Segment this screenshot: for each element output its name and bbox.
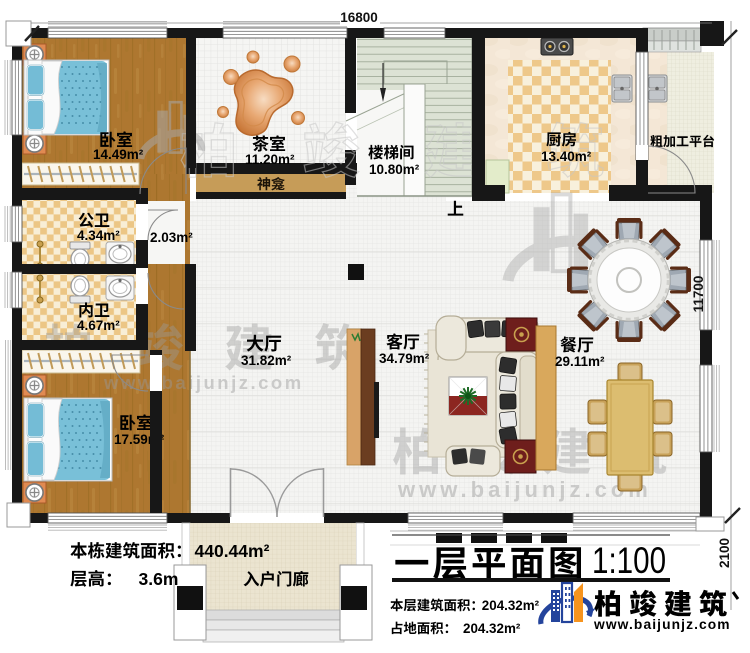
- svg-text:14.49m²: 14.49m²: [93, 147, 144, 162]
- svg-text:2100: 2100: [717, 538, 732, 568]
- svg-text:440.44m²: 440.44m²: [195, 541, 270, 561]
- svg-text:11700: 11700: [691, 276, 706, 313]
- svg-text:3.6m: 3.6m: [139, 569, 179, 589]
- svg-text:4.67m²: 4.67m²: [77, 318, 120, 333]
- svg-text:www.baijunjz.com: www.baijunjz.com: [397, 477, 652, 502]
- svg-text:204.32m²: 204.32m²: [482, 598, 540, 613]
- svg-text:34.79m²: 34.79m²: [379, 351, 430, 366]
- svg-text:31.82m²: 31.82m²: [241, 353, 292, 368]
- svg-text:www.baijunjz.com: www.baijunjz.com: [593, 617, 731, 632]
- svg-text:204.32m²: 204.32m²: [463, 621, 521, 636]
- svg-text:www.baijunjz.com: www.baijunjz.com: [103, 372, 304, 393]
- svg-text:11.20m²: 11.20m²: [245, 152, 295, 167]
- svg-text:10.80m²: 10.80m²: [369, 162, 420, 177]
- svg-text:2.03m²: 2.03m²: [150, 230, 193, 245]
- svg-text:29.11m²: 29.11m²: [555, 354, 605, 369]
- svg-text:13.40m²: 13.40m²: [541, 149, 592, 164]
- svg-text:1:100: 1:100: [592, 541, 666, 582]
- svg-text:16800: 16800: [340, 10, 378, 25]
- svg-text:4.34m²: 4.34m²: [77, 228, 120, 243]
